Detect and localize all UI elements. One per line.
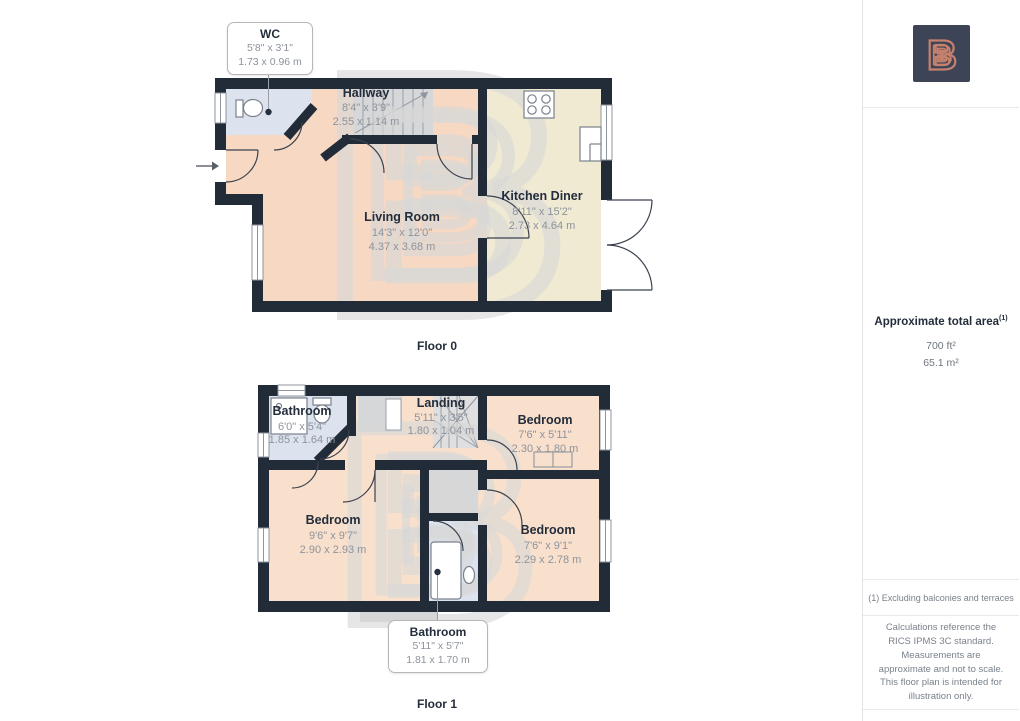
bathroom-callout-dot [434, 569, 440, 575]
room-dims: 1.85 x 1.64 m [269, 434, 336, 446]
room-name: Bedroom [518, 413, 573, 427]
basin-icon [464, 567, 475, 584]
disclaimer-text: Calculations reference the RICS IPMS 3C … [875, 621, 1007, 704]
floor1-label: Floor 1 [377, 697, 497, 711]
callout-imperial-dims: 5'11" x 5'7" [395, 640, 481, 654]
total-area-heading-text: Approximate total area [874, 316, 999, 328]
floorplan-page: B B B [0, 0, 1020, 721]
disclaimer-section: Calculations reference the RICS IPMS 3C … [863, 616, 1019, 710]
bathroom-callout: Bathroom 5'11" x 5'7" 1.81 x 1.70 m [388, 620, 488, 673]
sidebar-spacer [863, 710, 1019, 721]
room-dims: 7'6" x 9'1" [524, 540, 572, 552]
footnote-section: (1) Excluding balconies and terraces [863, 580, 1019, 616]
stove-icon [524, 91, 554, 118]
footnote-text: (1) Excluding balconies and terraces [868, 593, 1014, 603]
room-dims: 2.90 x 2.93 m [300, 544, 367, 556]
room-name: Bathroom [272, 404, 331, 418]
callout-room-name: WC [234, 27, 306, 42]
room-dims: 8'11" x 15'2" [512, 206, 572, 218]
floor0-label: Floor 0 [377, 339, 497, 353]
callout-metric-dims: 1.73 x 0.96 m [234, 56, 306, 70]
total-area-metric: 65.1 m² [923, 355, 959, 372]
sidebar: B B B Approximate total area(1) 700 ft² … [862, 0, 1019, 721]
callout-room-name: Bathroom [395, 625, 481, 640]
wc-callout-dot [265, 109, 271, 115]
callout-imperial-dims: 5'8" x 3'1" [234, 42, 306, 56]
toilet-icon [236, 100, 263, 118]
room-dims: 6'0" x 5'4" [278, 421, 326, 433]
room-dims: 14'3" x 12'0" [372, 227, 432, 239]
wc-callout: WC 5'8" x 3'1" 1.73 x 0.96 m [227, 22, 313, 75]
wardrobe-icon [386, 399, 401, 430]
room-dims: 2.73 x 4.64 m [509, 220, 576, 232]
total-area-section: Approximate total area(1) 700 ft² 65.1 m… [863, 108, 1019, 580]
total-area-imperial: 700 ft² [926, 338, 956, 355]
brand-logo-icon: B B B [913, 25, 970, 82]
room-dims: 5'11" x 3'5" [414, 412, 467, 424]
footnote-marker: (1) [999, 315, 1008, 322]
room-name: Kitchen Diner [501, 189, 582, 203]
room-dims: 2.55 x 1.14 m [333, 116, 400, 128]
room-name: Hallway [343, 86, 390, 100]
svg-text:B: B [936, 47, 946, 63]
room-name: Bedroom [521, 523, 576, 537]
room-dims: 1.80 x 1.04 m [408, 425, 475, 437]
room-dims: 8'4" x 3'9" [342, 102, 390, 114]
room-name: Landing [417, 396, 466, 410]
callout-metric-dims: 1.81 x 1.70 m [395, 654, 481, 668]
room-dims: 7'6" x 5'11" [518, 429, 571, 441]
sink-icon [580, 127, 601, 161]
room-dims: 2.30 x 1.80 m [512, 443, 579, 455]
logo-section: B B B [863, 0, 1019, 108]
room-name: Living Room [364, 210, 440, 224]
room-dims: 4.37 x 3.68 m [369, 241, 436, 253]
room-dims: 9'6" x 9'7" [309, 530, 357, 542]
room-dims: 2.29 x 2.78 m [515, 554, 582, 566]
room-name: Bedroom [306, 513, 361, 527]
total-area-heading: Approximate total area(1) [874, 315, 1007, 328]
